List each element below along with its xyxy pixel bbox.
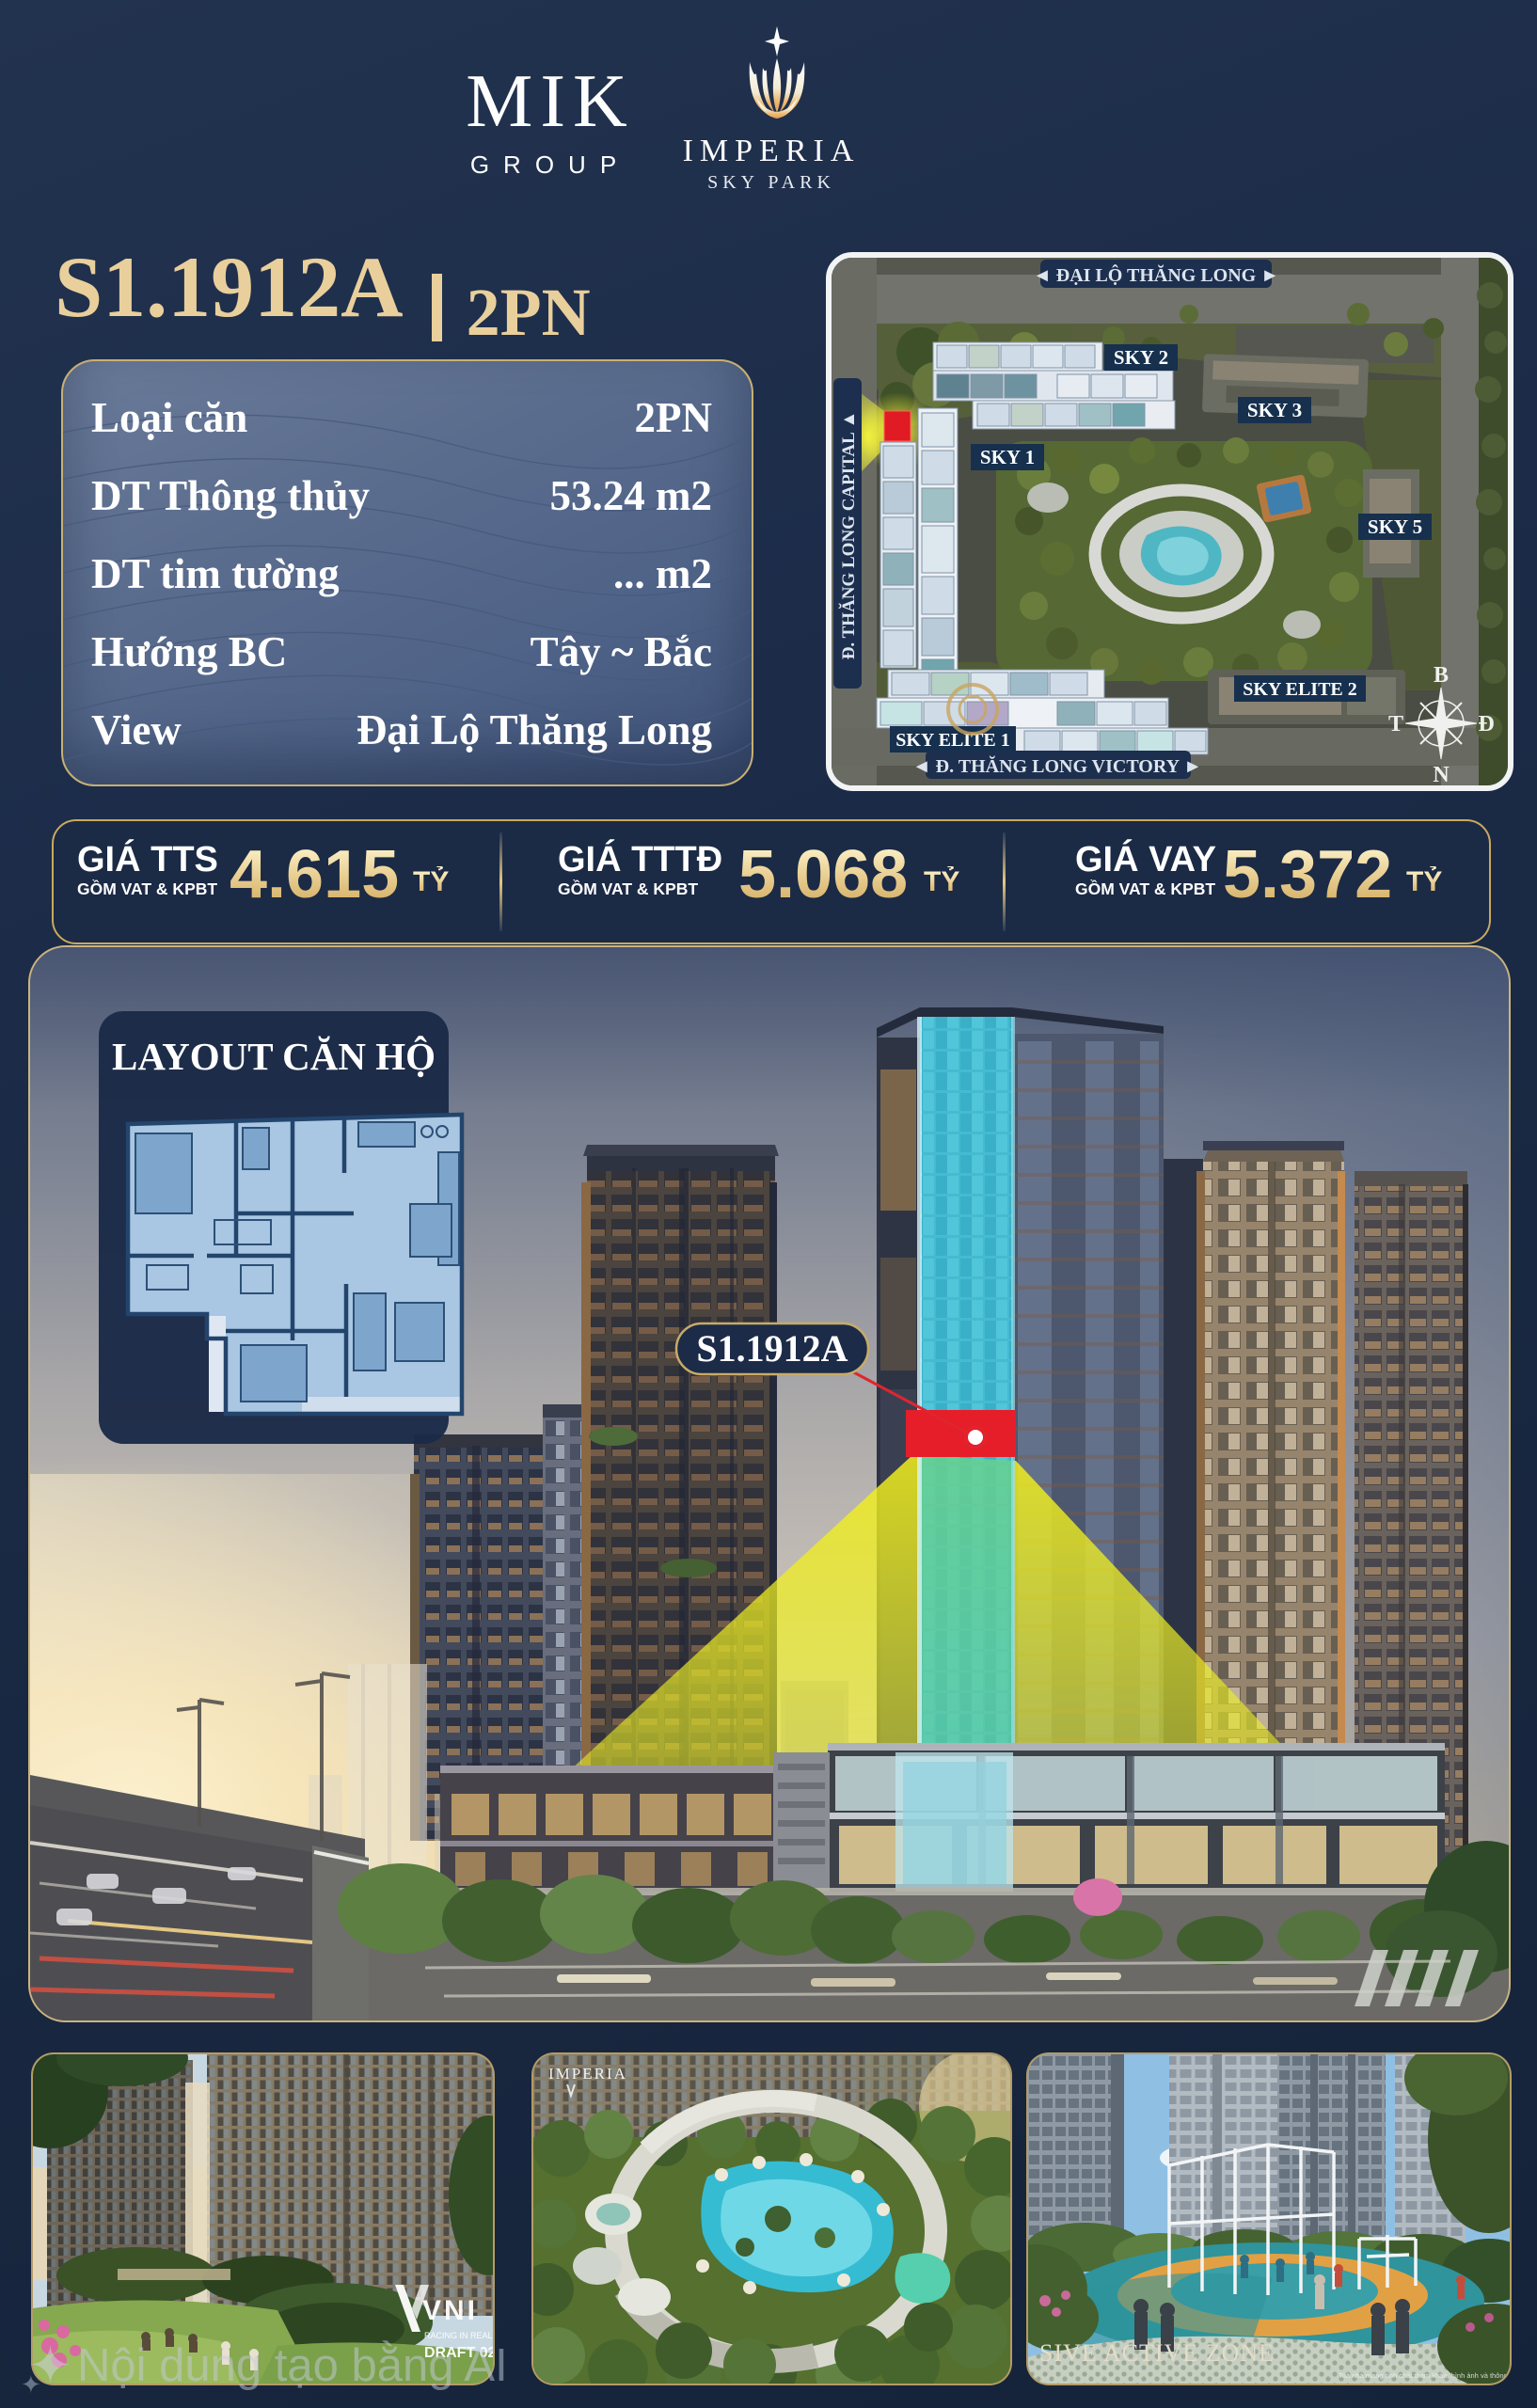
svg-text:LAYOUT CĂN HỘ: LAYOUT CĂN HỘ	[112, 1035, 436, 1078]
svg-text:Đ. THĂNG LONG CAPITAL ▲: Đ. THĂNG LONG CAPITAL ▲	[838, 411, 859, 660]
svg-text:SKY ELITE 2: SKY ELITE 2	[1243, 679, 1357, 700]
svg-text:SKY 1: SKY 1	[980, 446, 1035, 468]
svg-text:SKY ELITE 1: SKY ELITE 1	[895, 730, 1010, 751]
svg-text:Toà nhà mang tính chất tham kh: Toà nhà mang tính chất tham khảo, hình ả…	[1339, 2371, 1510, 2380]
svg-text:N: N	[1433, 763, 1450, 785]
svg-text:SKY 5: SKY 5	[1368, 515, 1422, 538]
svg-text:SIVE ACTIVE ZONE: SIVE ACTIVE ZONE	[1039, 2339, 1275, 2367]
svg-text:Đ: Đ	[1478, 712, 1494, 737]
svg-text:SKY 2: SKY 2	[1114, 346, 1168, 369]
svg-text:◄ ĐẠI LỘ THĂNG LONG ►: ◄ ĐẠI LỘ THĂNG LONG ►	[1033, 263, 1279, 286]
svg-text:S1.1912A: S1.1912A	[696, 1327, 848, 1370]
svg-text:B: B	[1434, 663, 1449, 688]
svg-text:IMPERIA: IMPERIA	[548, 2065, 627, 2083]
svg-text:◄ Đ. THĂNG LONG VICTORY ►: ◄ Đ. THĂNG LONG VICTORY ►	[912, 754, 1202, 777]
svg-text:SKY 3: SKY 3	[1247, 399, 1302, 421]
svg-text:VNI: VNI	[422, 2295, 478, 2326]
svg-text:T: T	[1388, 712, 1403, 737]
